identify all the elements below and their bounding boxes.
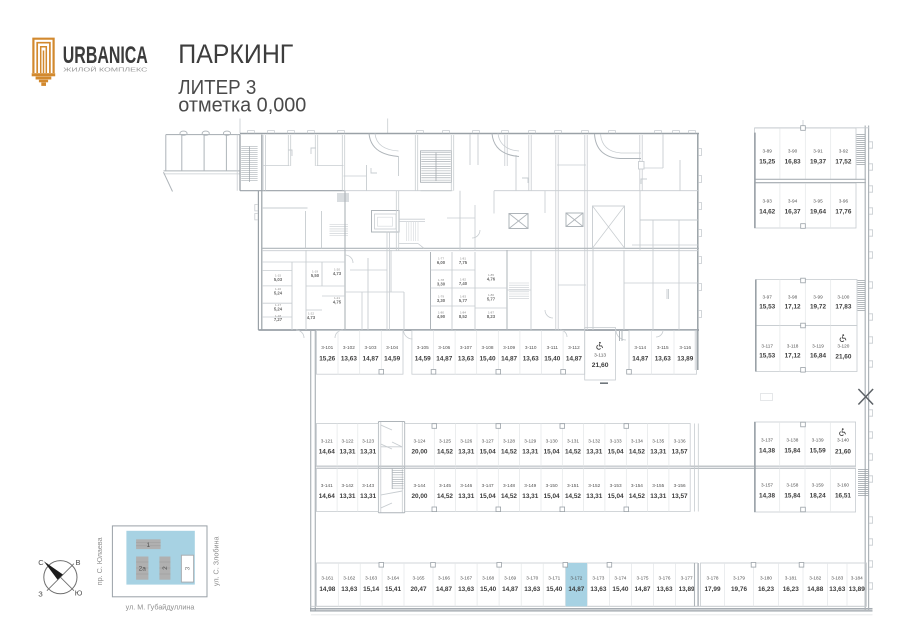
- svg-text:3-138: 3-138: [786, 438, 798, 443]
- svg-text:3-150: 3-150: [546, 483, 558, 488]
- svg-text:3-166: 3-166: [438, 575, 450, 580]
- svg-text:15,04: 15,04: [544, 449, 560, 456]
- svg-text:3-170: 3-170: [526, 575, 538, 580]
- svg-text:3-179: 3-179: [733, 575, 745, 580]
- svg-text:14,87: 14,87: [632, 356, 648, 363]
- svg-text:3-116: 3-116: [679, 345, 691, 350]
- svg-text:3-132: 3-132: [588, 439, 600, 444]
- svg-text:14,87: 14,87: [363, 356, 379, 363]
- svg-text:3-130: 3-130: [546, 439, 558, 444]
- svg-text:3,30: 3,30: [437, 282, 446, 287]
- svg-text:3-152: 3-152: [588, 483, 600, 488]
- svg-text:3-133: 3-133: [610, 439, 622, 444]
- svg-text:14,87: 14,87: [436, 356, 452, 363]
- svg-text:14,64: 14,64: [319, 493, 335, 500]
- svg-text:3-172: 3-172: [570, 575, 582, 580]
- svg-text:17,76: 17,76: [835, 209, 851, 216]
- svg-text:3-147: 3-147: [482, 483, 494, 488]
- svg-text:3-113: 3-113: [594, 353, 606, 359]
- svg-text:17,52: 17,52: [835, 159, 851, 166]
- svg-text:13,63: 13,63: [341, 356, 357, 363]
- svg-text:14,87: 14,87: [501, 356, 517, 363]
- svg-text:13,89: 13,89: [679, 586, 695, 593]
- svg-text:6,00: 6,00: [437, 260, 446, 265]
- svg-text:5,24: 5,24: [274, 307, 283, 312]
- svg-text:13,63: 13,63: [657, 586, 673, 593]
- svg-text:13,63: 13,63: [523, 356, 539, 363]
- svg-text:13,63: 13,63: [524, 586, 540, 593]
- svg-text:14,87: 14,87: [634, 586, 650, 593]
- svg-text:15,84: 15,84: [784, 493, 800, 500]
- svg-text:15,04: 15,04: [608, 493, 624, 500]
- svg-text:3-92: 3-92: [839, 149, 849, 154]
- svg-text:15,41: 15,41: [385, 586, 401, 593]
- svg-text:4,76: 4,76: [487, 277, 496, 282]
- svg-text:13,63: 13,63: [341, 586, 357, 593]
- svg-text:5,50: 5,50: [311, 273, 320, 278]
- svg-text:3-114: 3-114: [634, 345, 646, 350]
- svg-text:3-149: 3-149: [524, 483, 536, 488]
- svg-text:13,31: 13,31: [458, 493, 474, 500]
- svg-text:14,52: 14,52: [501, 449, 517, 456]
- svg-text:14,38: 14,38: [759, 448, 775, 455]
- svg-text:7,40: 7,40: [459, 281, 468, 286]
- svg-text:14,62: 14,62: [759, 209, 775, 216]
- svg-text:3-119: 3-119: [812, 344, 824, 349]
- svg-text:2: 2: [162, 566, 169, 570]
- svg-text:3-122: 3-122: [341, 439, 353, 444]
- svg-text:15,04: 15,04: [480, 449, 496, 456]
- svg-text:3-158: 3-158: [786, 483, 798, 488]
- svg-text:3-100: 3-100: [837, 295, 849, 300]
- svg-text:отметка 0,000: отметка 0,000: [178, 94, 306, 116]
- svg-text:3-169: 3-169: [504, 575, 516, 580]
- svg-text:3-134: 3-134: [631, 439, 643, 444]
- svg-text:8,23: 8,23: [487, 314, 496, 319]
- svg-text:3-102: 3-102: [343, 345, 355, 350]
- svg-text:13,31: 13,31: [339, 493, 355, 500]
- svg-text:15,59: 15,59: [810, 448, 826, 455]
- svg-text:13,31: 13,31: [360, 493, 376, 500]
- svg-text:14,52: 14,52: [565, 493, 581, 500]
- svg-text:3-151: 3-151: [567, 483, 579, 488]
- svg-text:17,12: 17,12: [785, 353, 801, 360]
- svg-text:5,03: 5,03: [274, 277, 283, 282]
- svg-text:8,52: 8,52: [459, 314, 468, 319]
- svg-text:3-107: 3-107: [460, 345, 472, 350]
- svg-text:16,23: 16,23: [758, 586, 774, 593]
- svg-text:3-95: 3-95: [813, 199, 823, 204]
- svg-text:3-136: 3-136: [674, 439, 686, 444]
- svg-text:15,40: 15,40: [612, 586, 628, 593]
- svg-text:15,40: 15,40: [480, 586, 496, 593]
- svg-text:16,83: 16,83: [785, 159, 801, 166]
- svg-text:13,31: 13,31: [650, 449, 666, 456]
- svg-text:3-164: 3-164: [387, 575, 399, 580]
- svg-text:3-123: 3-123: [362, 439, 374, 444]
- svg-text:14,59: 14,59: [384, 356, 400, 363]
- svg-text:13,63: 13,63: [829, 586, 845, 593]
- svg-text:3-128: 3-128: [503, 439, 515, 444]
- svg-text:15,14: 15,14: [363, 586, 379, 593]
- svg-text:3-112: 3-112: [568, 345, 580, 350]
- svg-text:3-143: 3-143: [362, 483, 374, 488]
- svg-text:13,57: 13,57: [672, 493, 688, 500]
- svg-text:3-96: 3-96: [839, 199, 849, 204]
- svg-text:21,60: 21,60: [592, 362, 609, 369]
- svg-text:14,38: 14,38: [759, 493, 775, 500]
- svg-text:15,26: 15,26: [319, 356, 335, 363]
- svg-text:13,31: 13,31: [360, 449, 376, 456]
- svg-text:С: С: [38, 558, 44, 567]
- svg-text:3-125: 3-125: [439, 439, 451, 444]
- svg-text:3-117: 3-117: [761, 344, 773, 349]
- svg-text:13,31: 13,31: [522, 449, 538, 456]
- svg-text:5,77: 5,77: [487, 297, 496, 302]
- svg-text:20,47: 20,47: [411, 586, 427, 593]
- svg-text:14,52: 14,52: [437, 493, 453, 500]
- svg-text:5,77: 5,77: [459, 298, 468, 303]
- svg-text:3-156: 3-156: [674, 483, 686, 488]
- svg-text:1: 1: [146, 542, 150, 549]
- svg-text:3-145: 3-145: [439, 483, 451, 488]
- svg-text:14,52: 14,52: [437, 449, 453, 456]
- svg-text:3-118: 3-118: [787, 344, 799, 349]
- svg-text:3-127: 3-127: [482, 439, 494, 444]
- svg-text:3-126: 3-126: [460, 439, 472, 444]
- svg-text:14,59: 14,59: [415, 356, 431, 363]
- svg-text:15,84: 15,84: [784, 448, 800, 455]
- svg-text:3-110: 3-110: [525, 345, 537, 350]
- svg-text:3-121: 3-121: [321, 439, 333, 444]
- svg-text:3-115: 3-115: [657, 345, 669, 350]
- svg-text:4,73: 4,73: [307, 315, 316, 320]
- svg-text:15,04: 15,04: [480, 493, 496, 500]
- svg-text:3-159: 3-159: [812, 483, 824, 488]
- svg-text:13,31: 13,31: [339, 449, 355, 456]
- svg-text:3-141: 3-141: [321, 483, 333, 488]
- svg-text:3-163: 3-163: [365, 575, 377, 580]
- svg-text:ПАРКИНГ: ПАРКИНГ: [178, 39, 293, 69]
- svg-text:13,89: 13,89: [849, 586, 865, 593]
- svg-text:16,51: 16,51: [835, 493, 851, 500]
- svg-text:3-129: 3-129: [524, 439, 536, 444]
- svg-text:3-171: 3-171: [548, 575, 560, 580]
- svg-text:13,31: 13,31: [586, 493, 602, 500]
- svg-text:14,88: 14,88: [807, 586, 823, 593]
- svg-text:21,60: 21,60: [835, 354, 851, 361]
- svg-text:15,40: 15,40: [544, 356, 560, 363]
- svg-text:3-183: 3-183: [831, 575, 843, 580]
- svg-text:3-90: 3-90: [788, 149, 798, 154]
- svg-text:3-139: 3-139: [812, 438, 824, 443]
- svg-text:5,24: 5,24: [274, 290, 283, 295]
- svg-text:3-167: 3-167: [460, 575, 472, 580]
- svg-text:пр. С. Юлаева: пр. С. Юлаева: [95, 537, 104, 585]
- svg-text:13,63: 13,63: [458, 586, 474, 593]
- svg-text:3-182: 3-182: [809, 575, 821, 580]
- svg-text:В: В: [75, 558, 80, 567]
- svg-text:3-98: 3-98: [788, 295, 798, 300]
- svg-text:21,60: 21,60: [835, 449, 851, 456]
- svg-text:3-165: 3-165: [413, 575, 425, 580]
- svg-text:13,31: 13,31: [458, 449, 474, 456]
- svg-text:3-176: 3-176: [659, 575, 671, 580]
- svg-text:16,84: 16,84: [810, 353, 826, 360]
- svg-text:15,40: 15,40: [546, 586, 562, 593]
- svg-text:3-153: 3-153: [610, 483, 622, 488]
- svg-text:17,12: 17,12: [785, 304, 801, 311]
- svg-text:3-161: 3-161: [321, 575, 333, 580]
- svg-text:3-93: 3-93: [763, 199, 773, 204]
- svg-text:14,87: 14,87: [566, 356, 582, 363]
- svg-text:16,37: 16,37: [785, 209, 801, 216]
- svg-text:3-154: 3-154: [631, 483, 643, 488]
- svg-text:3-140: 3-140: [837, 438, 849, 443]
- svg-text:14,87: 14,87: [436, 586, 452, 593]
- svg-text:3-131: 3-131: [567, 439, 579, 444]
- svg-text:13,57: 13,57: [672, 449, 688, 456]
- svg-text:3-180: 3-180: [760, 575, 772, 580]
- svg-text:3-168: 3-168: [482, 575, 494, 580]
- svg-text:15,53: 15,53: [759, 353, 775, 360]
- svg-text:15,53: 15,53: [759, 304, 775, 311]
- svg-text:3-157: 3-157: [761, 483, 773, 488]
- svg-text:3,30: 3,30: [437, 298, 446, 303]
- svg-text:13,31: 13,31: [522, 493, 538, 500]
- svg-text:ЖИЛОЙ КОМПЛЕКС: ЖИЛОЙ КОМПЛЕКС: [63, 66, 147, 74]
- svg-text:3-108: 3-108: [482, 345, 494, 350]
- svg-text:3-109: 3-109: [503, 345, 515, 350]
- svg-text:7,75: 7,75: [459, 260, 468, 265]
- svg-text:13,63: 13,63: [458, 356, 474, 363]
- svg-text:3-137: 3-137: [761, 438, 773, 443]
- svg-text:3-173: 3-173: [592, 575, 604, 580]
- svg-text:17,99: 17,99: [705, 586, 721, 593]
- svg-text:14,87: 14,87: [502, 586, 518, 593]
- svg-text:14,52: 14,52: [565, 449, 581, 456]
- svg-text:3-160: 3-160: [837, 483, 849, 488]
- svg-text:14,52: 14,52: [501, 493, 517, 500]
- svg-text:3-104: 3-104: [386, 345, 398, 350]
- svg-text:13,63: 13,63: [590, 586, 606, 593]
- svg-text:3-148: 3-148: [503, 483, 515, 488]
- svg-text:4,90: 4,90: [437, 314, 446, 319]
- svg-text:15,04: 15,04: [608, 449, 624, 456]
- svg-text:3-106: 3-106: [438, 345, 450, 350]
- svg-text:2а: 2а: [139, 566, 147, 573]
- svg-text:15,25: 15,25: [759, 159, 775, 166]
- svg-text:3-175: 3-175: [636, 575, 648, 580]
- svg-text:3-181: 3-181: [785, 575, 797, 580]
- svg-text:18,24: 18,24: [810, 493, 826, 500]
- svg-text:3-142: 3-142: [341, 483, 353, 488]
- svg-text:16,23: 16,23: [783, 586, 799, 593]
- svg-text:3-184: 3-184: [851, 575, 863, 580]
- svg-text:3-135: 3-135: [652, 439, 664, 444]
- svg-text:19,76: 19,76: [731, 586, 747, 593]
- svg-text:3-120: 3-120: [837, 344, 849, 349]
- svg-text:3-144: 3-144: [413, 483, 425, 488]
- svg-text:7,27: 7,27: [274, 317, 283, 322]
- svg-text:URBANICA: URBANICA: [63, 42, 148, 69]
- svg-text:3-89: 3-89: [763, 149, 773, 154]
- svg-text:3-178: 3-178: [707, 575, 719, 580]
- svg-text:3-177: 3-177: [681, 575, 693, 580]
- svg-text:15,04: 15,04: [544, 493, 560, 500]
- svg-text:15,40: 15,40: [480, 356, 496, 363]
- svg-text:3-99: 3-99: [813, 295, 823, 300]
- svg-text:14,87: 14,87: [568, 586, 584, 593]
- svg-text:3-111: 3-111: [547, 345, 559, 350]
- svg-text:3-155: 3-155: [652, 483, 664, 488]
- svg-text:20,00: 20,00: [411, 449, 427, 456]
- svg-text:13,31: 13,31: [586, 449, 602, 456]
- svg-text:3-103: 3-103: [365, 345, 377, 350]
- svg-text:З: З: [38, 590, 43, 599]
- svg-text:19,72: 19,72: [810, 304, 826, 311]
- svg-text:3-97: 3-97: [763, 295, 773, 300]
- svg-text:13,63: 13,63: [655, 356, 671, 363]
- svg-text:14,52: 14,52: [629, 449, 645, 456]
- svg-text:3-124: 3-124: [413, 439, 425, 444]
- svg-text:13,31: 13,31: [650, 493, 666, 500]
- svg-text:3: 3: [185, 566, 192, 570]
- svg-text:13,89: 13,89: [677, 356, 693, 363]
- svg-text:3-91: 3-91: [813, 149, 823, 154]
- svg-text:4,75: 4,75: [333, 299, 342, 304]
- svg-text:19,37: 19,37: [810, 159, 826, 166]
- svg-text:14,98: 14,98: [319, 586, 335, 593]
- svg-text:3-105: 3-105: [417, 345, 429, 350]
- svg-text:4,73: 4,73: [333, 271, 342, 276]
- svg-text:17,83: 17,83: [835, 304, 851, 311]
- svg-text:3-101: 3-101: [321, 345, 333, 350]
- svg-text:ул. М. Губайдуллина: ул. М. Губайдуллина: [126, 603, 195, 612]
- svg-text:3-174: 3-174: [614, 575, 626, 580]
- svg-text:3-146: 3-146: [460, 483, 472, 488]
- svg-text:3-162: 3-162: [343, 575, 355, 580]
- svg-text:14,64: 14,64: [319, 449, 335, 456]
- svg-text:3-94: 3-94: [788, 199, 798, 204]
- svg-text:19,64: 19,64: [810, 209, 826, 216]
- svg-text:Ю: Ю: [75, 588, 83, 597]
- svg-text:ул. С. Злобина: ул. С. Злобина: [212, 537, 221, 587]
- svg-text:14,52: 14,52: [629, 493, 645, 500]
- svg-text:20,00: 20,00: [411, 493, 427, 500]
